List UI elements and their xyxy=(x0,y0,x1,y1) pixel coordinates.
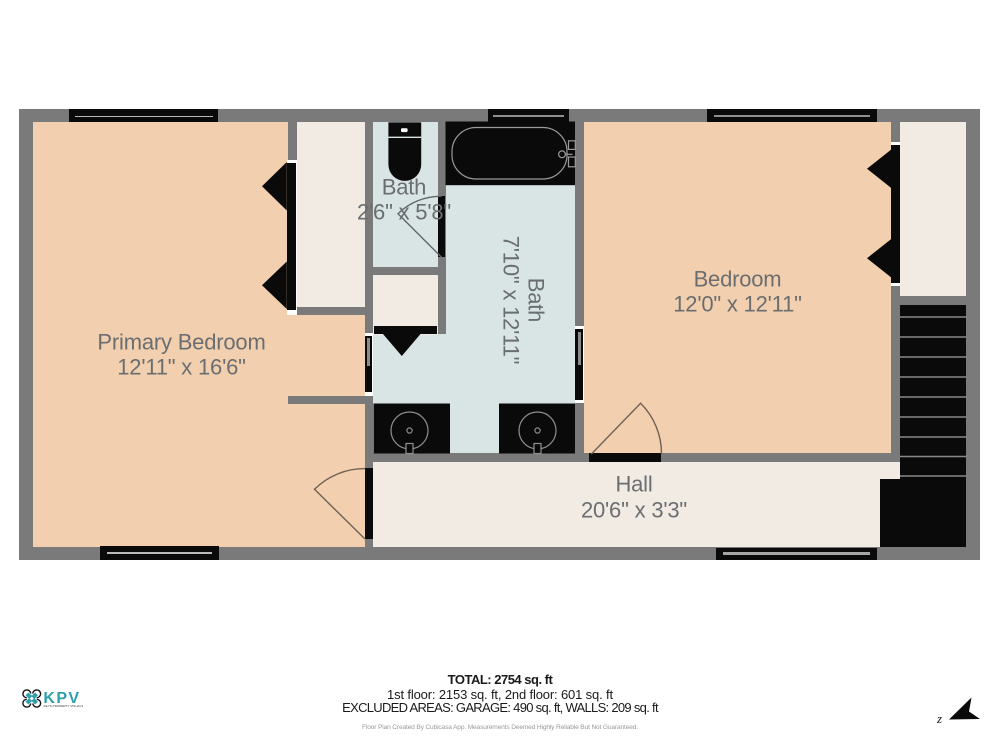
svg-text:KEYS PROPERTY VISUALS: KEYS PROPERTY VISUALS xyxy=(44,704,83,708)
svg-text:z: z xyxy=(936,711,942,726)
